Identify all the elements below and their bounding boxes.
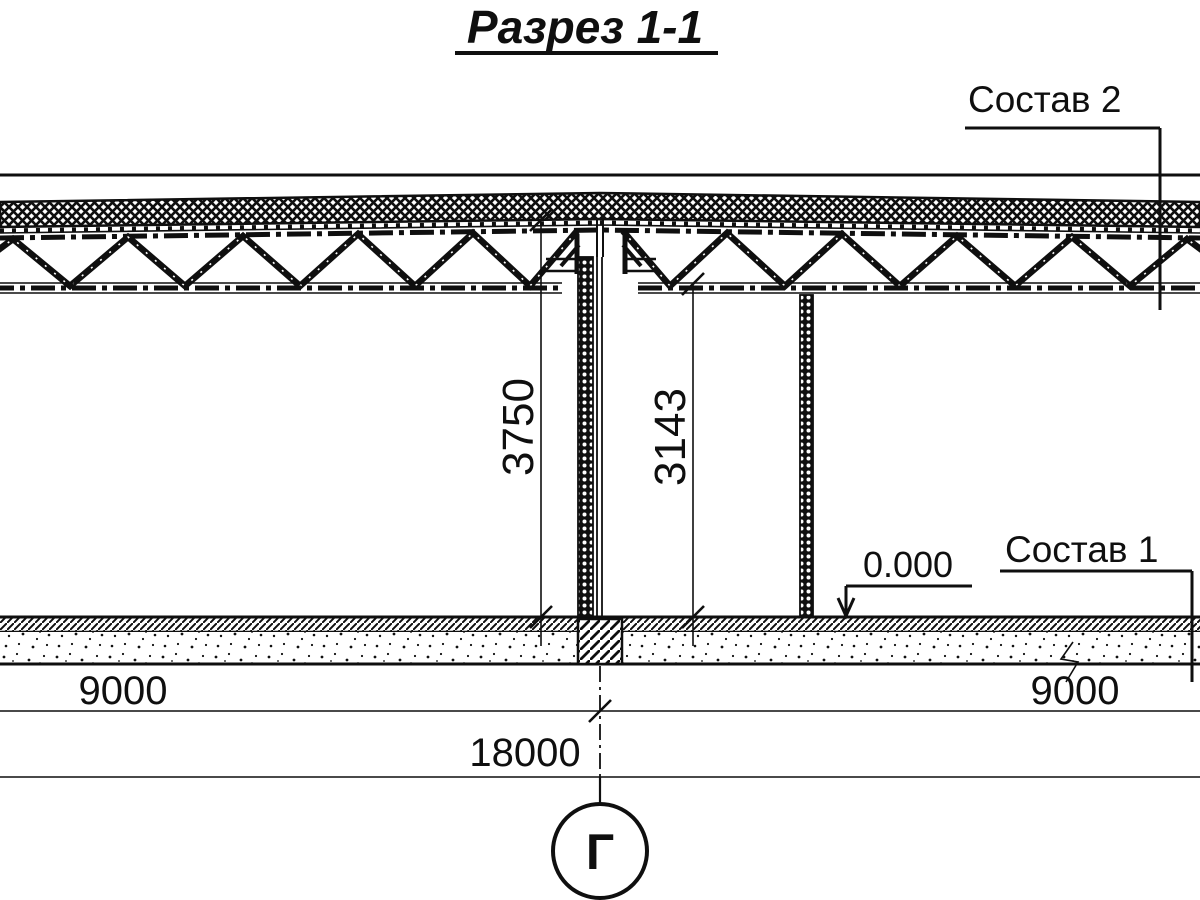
axis-label: Г <box>586 824 614 880</box>
truss-left <box>0 231 577 293</box>
callout-roof-composition: Состав 2 <box>965 79 1160 310</box>
roof-deck-band <box>0 193 1200 227</box>
section-drawing: Разрез 1-1 <box>0 0 1200 900</box>
dim-total-value: 18000 <box>469 731 580 775</box>
page-title: Разрез 1-1 <box>455 1 718 53</box>
dim-3143-value: 3143 <box>646 388 695 486</box>
roof-assembly <box>0 175 1200 238</box>
roof-composition-label: Состав 2 <box>968 79 1121 120</box>
floor-composition-label: Состав 1 <box>1005 529 1158 570</box>
dim-3750-value: 3750 <box>494 378 543 476</box>
foundation-block <box>578 619 622 664</box>
elevation-value: 0.000 <box>863 544 953 585</box>
right-column <box>800 295 813 619</box>
dim-bay-right-value: 9000 <box>1031 669 1120 713</box>
truss-right <box>623 231 1200 293</box>
elevation-mark: 0.000 <box>838 544 972 616</box>
center-column <box>578 257 602 619</box>
right-column-hatched-strip <box>800 295 813 619</box>
grid-axis: Г <box>553 666 647 898</box>
dim-bay-left-value: 9000 <box>79 669 168 713</box>
section-title-text: Разрез 1-1 <box>467 1 703 53</box>
dimension-3143: 3143 <box>646 273 704 646</box>
center-column-hatched-strip <box>578 257 593 619</box>
